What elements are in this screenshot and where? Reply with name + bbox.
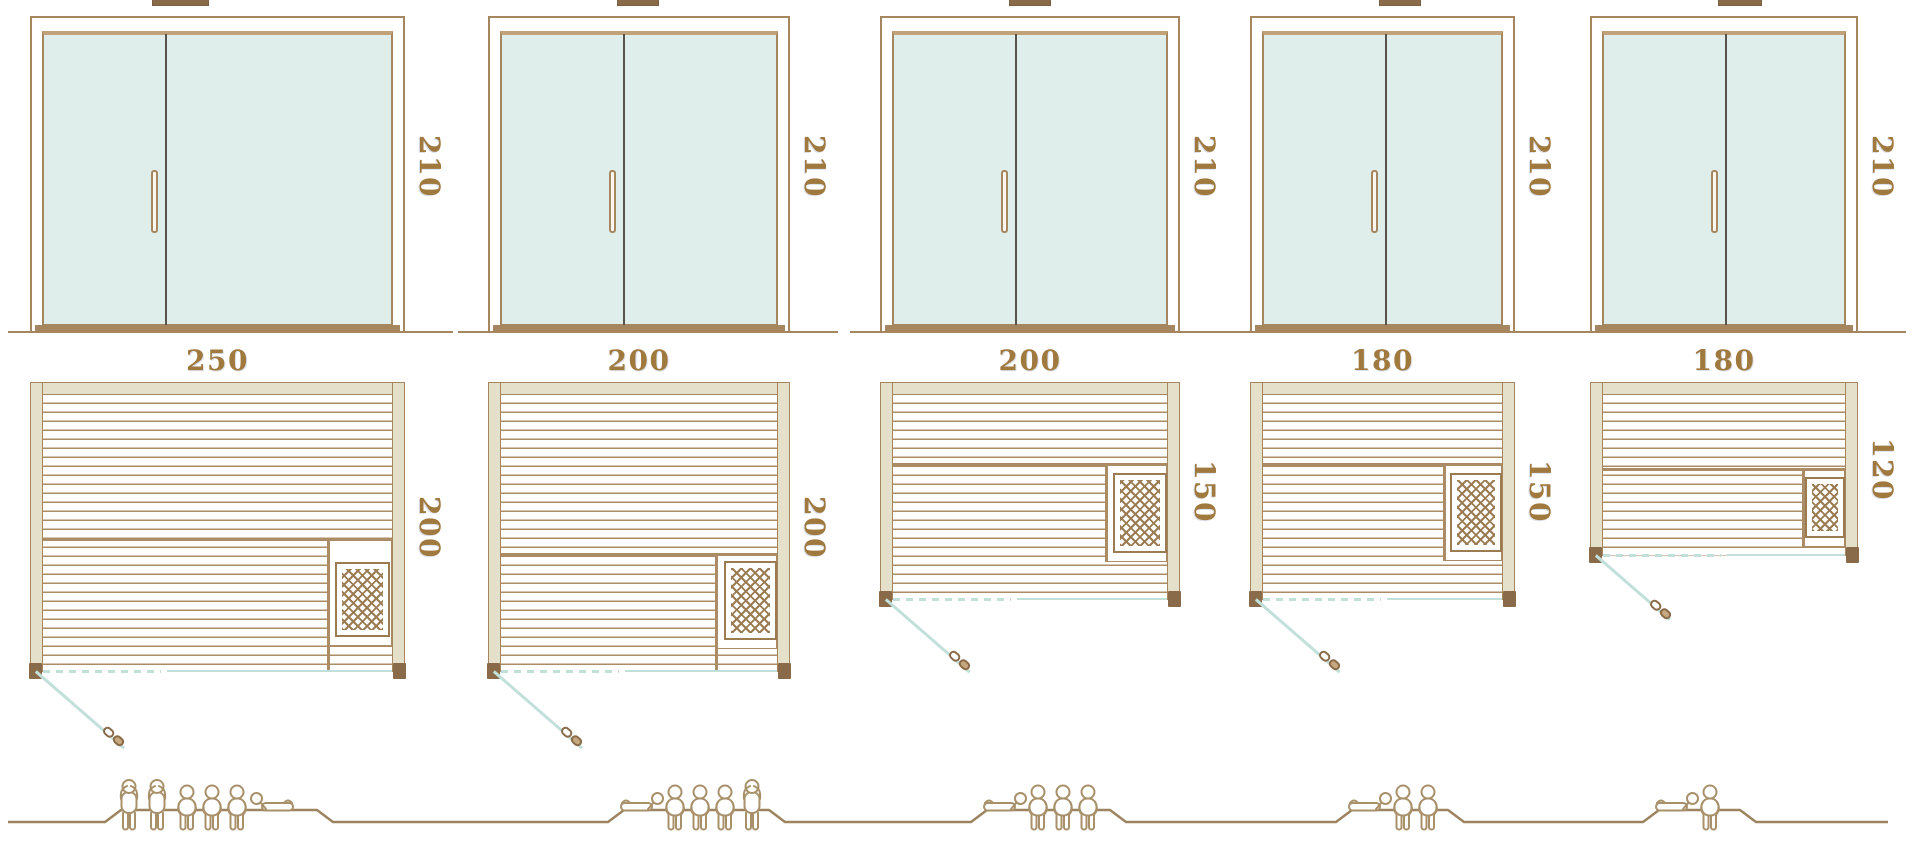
heater-box xyxy=(335,562,390,637)
wall-top xyxy=(1590,382,1858,395)
wall-left xyxy=(30,382,43,672)
floor-plan xyxy=(488,382,790,692)
person-seated-icon xyxy=(178,786,196,830)
plan-width-label: 200 xyxy=(488,344,790,376)
plan-depth-label: 150 xyxy=(1519,460,1559,522)
door-handle xyxy=(1001,170,1008,233)
roof-stub xyxy=(1379,0,1421,6)
plan-width-label: 180 xyxy=(1250,344,1515,376)
person-reclining-icon xyxy=(251,793,293,811)
capacity-ground-line xyxy=(8,810,1888,822)
plan-depth-label: 150 xyxy=(1184,460,1224,522)
door-opening-dashed-line xyxy=(893,598,1011,601)
door-opening-dashed-line xyxy=(1603,554,1721,557)
person-standing-icon xyxy=(744,780,760,830)
roof-stub xyxy=(1718,0,1762,6)
wall-left xyxy=(1590,382,1603,556)
capacity-group xyxy=(984,786,1097,830)
glass-door-front xyxy=(500,31,778,326)
glass-door-front xyxy=(1262,31,1503,326)
person-reclining-icon xyxy=(1656,793,1698,811)
person-seated-icon xyxy=(203,786,221,830)
wall-foot-right xyxy=(1503,591,1516,607)
heater-grille-icon xyxy=(1457,480,1495,545)
person-reclining-icon xyxy=(984,793,1026,811)
door-opening-dashed-line xyxy=(1263,598,1381,601)
open-door-leaf-icon xyxy=(1314,646,1346,677)
wall-left xyxy=(880,382,893,600)
heater-grille-icon xyxy=(1120,480,1160,546)
glass-door-front xyxy=(1602,31,1846,326)
door-height-label: 210 xyxy=(1862,135,1902,197)
wall-right xyxy=(1167,382,1180,600)
door-height-label: 210 xyxy=(409,135,449,197)
person-seated-icon xyxy=(716,786,734,830)
person-seated-icon xyxy=(1029,786,1047,830)
wall-left xyxy=(488,382,501,672)
capacity-group xyxy=(1656,786,1719,830)
glass-front-line xyxy=(1387,598,1502,600)
door-leaf-divider xyxy=(1385,34,1387,325)
door-height-label: 210 xyxy=(1519,135,1559,197)
wall-top xyxy=(30,382,405,395)
person-seated-icon xyxy=(666,786,684,830)
open-door-leaf-icon xyxy=(944,646,976,677)
floor-plan xyxy=(30,382,405,692)
glass-door-front xyxy=(892,31,1168,326)
door-leaf-divider xyxy=(1015,34,1017,325)
person-standing-icon xyxy=(121,780,137,830)
plan-width-label: 180 xyxy=(1590,344,1858,376)
door-handle xyxy=(1371,170,1378,233)
glass-front-line xyxy=(1727,554,1845,556)
door-height-label: 210 xyxy=(1184,135,1224,197)
bench-divider-line xyxy=(1105,463,1108,562)
plan-depth-label: 200 xyxy=(409,496,449,558)
sauna-size-diagram: 210 250 200 210 200 xyxy=(0,0,1920,856)
capacity-group xyxy=(1349,786,1437,830)
door-handle xyxy=(1711,170,1718,233)
wall-right xyxy=(777,382,790,672)
wall-top xyxy=(880,382,1180,395)
plan-width-label: 200 xyxy=(880,344,1180,376)
plan-width-label: 250 xyxy=(30,344,405,376)
glass-door-front xyxy=(42,31,393,326)
door-leaf-divider xyxy=(165,34,167,325)
capacity-group xyxy=(121,780,293,830)
person-standing-icon xyxy=(149,780,165,830)
person-seated-icon xyxy=(1419,786,1437,830)
door-leaf-divider xyxy=(1725,34,1727,325)
wall-foot-right xyxy=(1168,591,1181,607)
person-seated-icon xyxy=(1079,786,1097,830)
heater-grille-icon xyxy=(342,569,383,630)
ground-line xyxy=(1220,331,1563,333)
wall-foot-right xyxy=(1846,547,1859,563)
capacity-group xyxy=(621,780,760,830)
heater-box xyxy=(724,561,777,640)
glass-front-line xyxy=(1017,598,1167,600)
wall-foot-right xyxy=(393,663,406,679)
person-seated-icon xyxy=(228,786,246,830)
person-reclining-icon xyxy=(1349,793,1391,811)
roof-stub xyxy=(152,0,209,6)
floor-plan xyxy=(880,382,1180,620)
wall-left xyxy=(1250,382,1263,600)
person-seated-icon xyxy=(1394,786,1412,830)
person-seated-icon xyxy=(1054,786,1072,830)
roof-stub xyxy=(1009,0,1051,6)
wall-right xyxy=(392,382,405,672)
floor-plan xyxy=(1250,382,1515,620)
bench-divider-line xyxy=(327,538,330,672)
glass-front-line xyxy=(625,670,777,672)
wall-foot-right xyxy=(778,663,791,679)
heater-grille-icon xyxy=(731,568,770,633)
ground-line xyxy=(458,331,838,333)
wall-right xyxy=(1502,382,1515,600)
ground-line xyxy=(850,331,1228,333)
wall-right xyxy=(1845,382,1858,556)
bench-divider-line xyxy=(1443,463,1446,561)
heater-box xyxy=(1450,473,1502,552)
person-reclining-icon xyxy=(621,793,663,811)
door-leaf-divider xyxy=(623,34,625,325)
door-opening-dashed-line xyxy=(501,670,619,673)
glass-front-line xyxy=(167,670,392,672)
ground-line xyxy=(1560,331,1906,333)
person-seated-icon xyxy=(1701,786,1719,830)
open-door-leaf-icon xyxy=(1645,594,1677,625)
plan-depth-label: 200 xyxy=(794,496,834,558)
capacity-figures xyxy=(0,740,1920,856)
wall-top xyxy=(1250,382,1515,395)
door-height-label: 210 xyxy=(794,135,834,197)
wall-top xyxy=(488,382,790,395)
floor-plan xyxy=(1590,382,1858,576)
roof-stub xyxy=(617,0,659,6)
person-seated-icon xyxy=(691,786,709,830)
heater-box xyxy=(1113,473,1167,553)
bench-divider-line xyxy=(715,553,718,672)
door-handle xyxy=(151,170,158,233)
door-handle xyxy=(609,170,616,233)
heater-grille-icon xyxy=(1812,484,1838,531)
ground-line xyxy=(8,331,453,333)
door-opening-dashed-line xyxy=(43,670,161,673)
heater-box xyxy=(1805,477,1845,538)
plan-depth-label: 120 xyxy=(1862,438,1902,500)
